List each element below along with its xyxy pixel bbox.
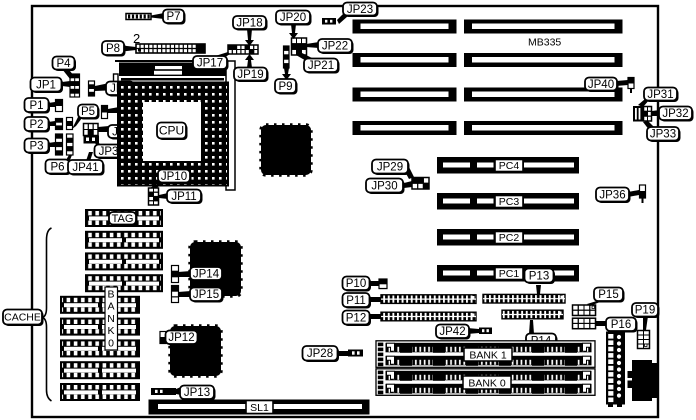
svg-text:JP18: JP18 [236,17,262,29]
svg-text:P4: P4 [56,58,71,70]
svg-text:A: A [107,301,114,313]
svg-text:JP36: JP36 [599,189,625,201]
svg-text:P2: P2 [29,119,43,131]
svg-text:JP31: JP31 [647,89,673,101]
svg-text:P15: P15 [598,289,618,301]
svg-text:JP12: JP12 [168,332,194,344]
svg-text:JP41: JP41 [72,162,98,174]
svg-text:TAG: TAG [112,213,134,225]
svg-text:CPU: CPU [159,124,184,138]
svg-text:JP33: JP33 [650,129,676,141]
svg-text:P7: P7 [166,11,180,23]
svg-text:PC2: PC2 [499,232,520,244]
svg-text:JP32: JP32 [662,108,688,120]
svg-text:SL1: SL1 [250,402,269,414]
svg-text:JP20: JP20 [280,12,306,24]
svg-text:JP14: JP14 [193,268,220,280]
svg-text:JP1: JP1 [36,79,56,91]
svg-text:P11: P11 [346,295,366,307]
svg-text:JP23: JP23 [347,4,373,16]
svg-text:JP10: JP10 [161,171,187,183]
svg-text:P1: P1 [29,100,43,112]
svg-text:PC1: PC1 [499,268,520,280]
svg-text:P8: P8 [106,43,120,55]
svg-text:JP11: JP11 [171,191,196,203]
svg-text:JP28: JP28 [307,348,333,360]
svg-text:BANK 1: BANK 1 [469,349,507,361]
svg-text:P9: P9 [278,81,292,93]
svg-text:JP42: JP42 [439,326,465,338]
svg-text:P5: P5 [81,106,95,118]
svg-text:MB335: MB335 [528,37,561,49]
svg-text:JP19: JP19 [237,69,263,81]
svg-text:P16: P16 [611,319,631,331]
svg-text:K: K [107,325,114,337]
svg-text:N: N [107,313,115,325]
svg-text:PC4: PC4 [499,160,520,172]
svg-text:0: 0 [108,337,114,349]
svg-text:BANK 0: BANK 0 [468,377,506,389]
svg-text:JP30: JP30 [371,180,397,192]
svg-text:P13: P13 [529,270,549,282]
svg-text:JP17: JP17 [197,57,223,69]
svg-text:P12: P12 [346,312,366,324]
svg-text:JP21: JP21 [308,60,334,72]
svg-text:JP40: JP40 [588,79,614,91]
svg-text:PC3: PC3 [499,196,520,208]
svg-text:JP3: JP3 [99,146,119,158]
svg-text:P10: P10 [346,278,366,290]
svg-text:P6: P6 [50,161,64,173]
svg-text:JP15: JP15 [193,289,219,301]
svg-text:P19: P19 [635,305,655,317]
svg-text:JP29: JP29 [377,161,403,173]
svg-text:P3: P3 [29,140,43,152]
svg-text:B: B [107,289,114,301]
svg-text:JP22: JP22 [322,41,348,53]
svg-text:JP13: JP13 [184,387,210,399]
svg-text:AMP: AMP [123,63,159,77]
svg-text:CACHE: CACHE [4,312,41,324]
